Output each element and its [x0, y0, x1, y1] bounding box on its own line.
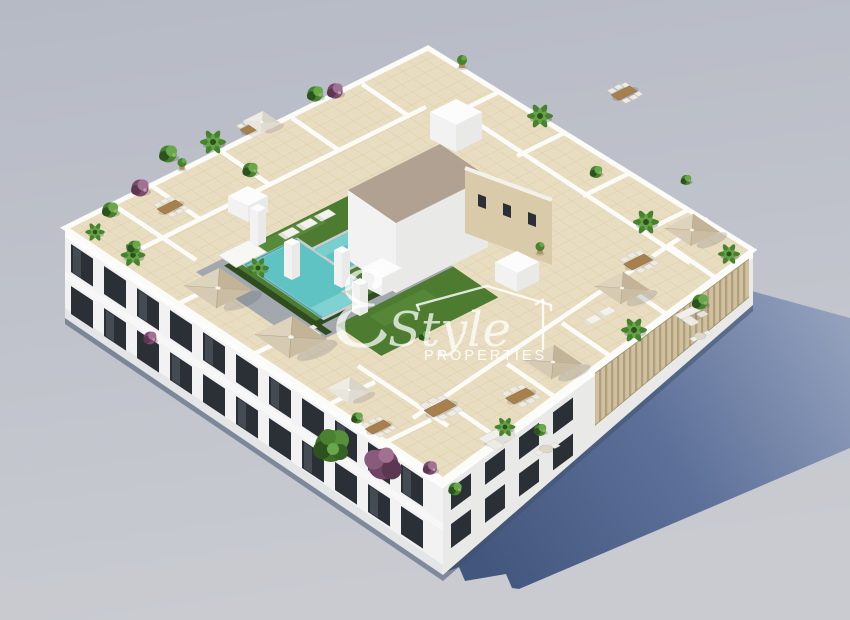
- bush: [590, 166, 604, 178]
- chimney-pillar: [284, 238, 300, 280]
- bush: [102, 202, 120, 217]
- chimney-pillar: [250, 204, 266, 246]
- bush: [242, 163, 259, 177]
- plant-pot: [178, 158, 187, 172]
- bush: [159, 146, 179, 163]
- scene: ℰ Style PROPERTIES: [0, 0, 850, 620]
- bush: [351, 412, 364, 423]
- plant-pot: [536, 242, 545, 256]
- render-canvas: ℰ Style PROPERTIES: [0, 0, 850, 620]
- watermark-caps: PROPERTIES: [424, 348, 547, 364]
- plant-pot: [457, 55, 467, 70]
- bush: [307, 86, 325, 101]
- bush: [692, 294, 710, 309]
- bush: [127, 241, 142, 254]
- bush: [534, 424, 548, 436]
- bush: [448, 483, 463, 496]
- watermark-initial: ℰ: [328, 249, 391, 371]
- bush: [681, 175, 693, 185]
